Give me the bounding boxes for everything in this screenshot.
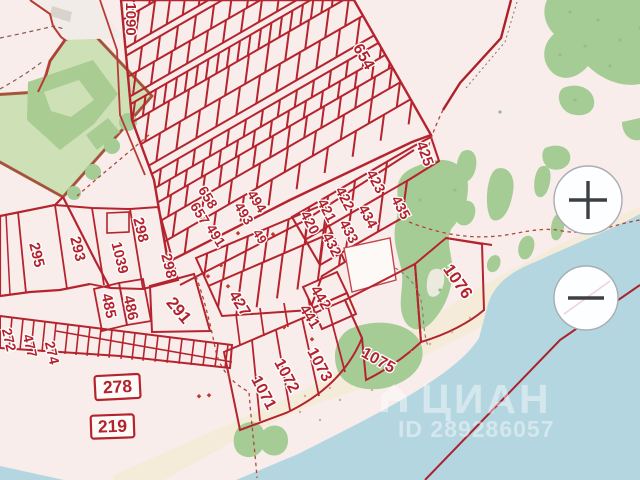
svg-text:278: 278 — [102, 376, 132, 398]
svg-text:1090: 1090 — [122, 2, 139, 35]
svg-text:ID 289286057: ID 289286057 — [398, 416, 555, 442]
svg-text:219: 219 — [98, 416, 128, 437]
